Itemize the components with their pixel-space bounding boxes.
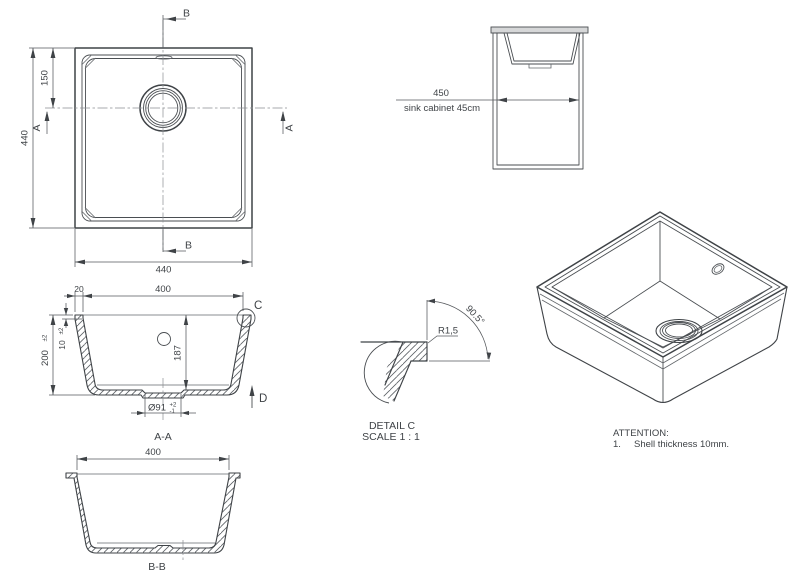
direction-d-arrow: D	[250, 385, 268, 408]
section-a-arrow-left	[45, 111, 50, 121]
detail-c-callout-label: C	[254, 300, 262, 312]
drawing-sheet: B B A A 150 440	[0, 0, 800, 579]
section-b-label-top: B	[183, 8, 190, 20]
note-1-number: 1.	[613, 439, 621, 450]
drain-stub	[529, 64, 551, 68]
section-bb: 400 B-B	[66, 447, 240, 573]
bowl-floor-3d	[604, 281, 720, 347]
plan-view: B B A A 150 440	[20, 8, 296, 276]
center-lines	[45, 15, 287, 252]
sink-in-cabinet	[504, 33, 580, 68]
section-b-arrow-top	[166, 17, 176, 22]
overflow-hole-section	[158, 333, 171, 346]
cabinet-caption: sink cabinet 45cm	[404, 103, 480, 114]
attention-heading: ATTENTION:	[613, 428, 669, 439]
dim-rim-20: 20	[74, 284, 84, 294]
dim-height-440: 440	[20, 130, 31, 146]
dim-drain-tol-plus: +2	[170, 403, 178, 409]
countertop	[491, 27, 588, 33]
dim-radius: R1,5	[438, 326, 458, 337]
bb-dimensions: 400	[77, 447, 229, 470]
dim-drain-tol-minus: -1	[170, 409, 176, 415]
dim-drain-offset: 150	[40, 70, 51, 86]
dim-drain-diameter: Ø91	[148, 403, 166, 414]
section-bb-title: B-B	[148, 561, 166, 573]
isometric-view	[537, 212, 787, 403]
dim-height-200: 200	[40, 350, 51, 366]
bowl-top-edge-3d	[552, 221, 772, 348]
dim-height-tol: ±2	[43, 334, 49, 341]
direction-d-label: D	[259, 393, 267, 405]
section-aa-title: A-A	[154, 431, 172, 443]
sink-bowl-top-edge	[86, 59, 242, 218]
section-aa: 20 400 200 ±2 10 ±2 187	[40, 284, 267, 443]
notes-block: ATTENTION: 1. Shell thickness 10mm.	[613, 428, 729, 450]
aa-dimensions: 20 400 200 ±2 10 ±2 187	[40, 284, 243, 417]
detail-c-scale: SCALE 1 : 1	[362, 431, 420, 443]
bowl-corner-edges-3d	[552, 221, 772, 319]
dim-lip-tol: ±2	[59, 327, 65, 334]
cabinet-side-view: 450 sink cabinet 45cm	[396, 27, 588, 169]
section-b-label-bottom: B	[185, 240, 192, 252]
shell-cross-section-bb	[66, 473, 240, 553]
detail-c-view: 90.5° R1,5 DETAIL C SCALE 1 : 1	[361, 299, 491, 443]
section-a-label-right: A	[284, 124, 296, 131]
cabinet-dimension: 450 sink cabinet 45cm	[396, 88, 579, 114]
dim-opening-400: 400	[155, 284, 171, 295]
overflow-hole-3d	[710, 262, 726, 277]
sink-outer-edge	[75, 48, 252, 228]
dim-cabinet-450: 450	[433, 88, 449, 99]
technical-drawing: B B A A 150 440	[0, 0, 800, 579]
section-b-arrow-bottom	[166, 249, 176, 254]
dim-depth-187: 187	[173, 345, 184, 361]
detail-angle-dimension: 90.5°	[427, 299, 491, 361]
note-1-text: Shell thickness 10mm.	[634, 439, 729, 450]
corner-chamfer-marks	[82, 55, 246, 222]
detail-radius-dimension: R1,5	[428, 326, 458, 344]
detail-material-hatch	[383, 342, 427, 401]
dim-width-440: 440	[156, 265, 172, 276]
dim-lip-10: 10	[57, 340, 67, 350]
sink-rim-inner-edge	[82, 55, 245, 221]
dim-opening-400-bb: 400	[145, 447, 161, 458]
plan-dimensions: 150 440 440	[20, 48, 253, 276]
section-a-arrow-right	[281, 111, 286, 121]
